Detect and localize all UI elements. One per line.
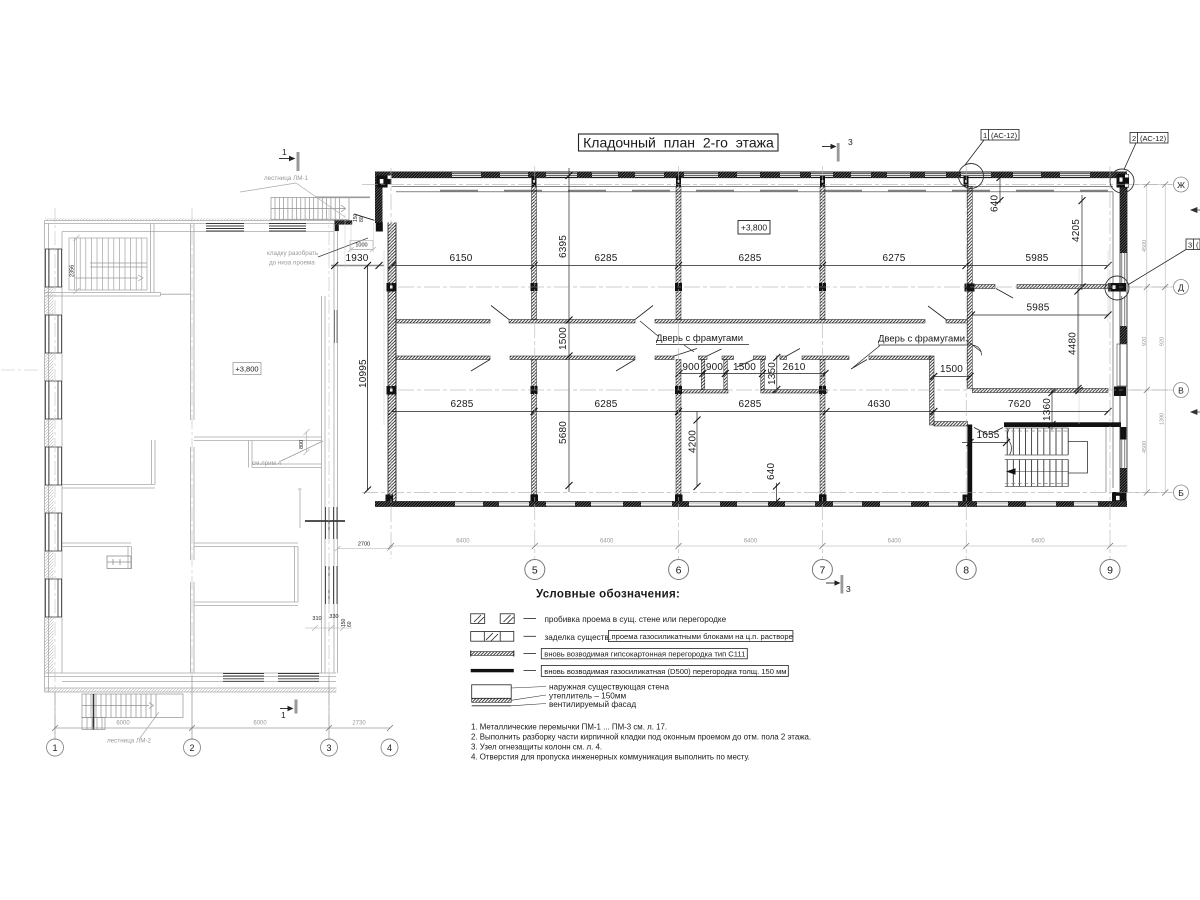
svg-text:1930: 1930 xyxy=(345,253,368,264)
svg-text:Б: Б xyxy=(1178,488,1184,498)
svg-text:1500: 1500 xyxy=(558,327,569,350)
svg-text:заделка существ.: заделка существ. xyxy=(545,633,612,642)
svg-text:3: 3 xyxy=(848,137,853,147)
svg-text:лестница ЛМ-2: лестница ЛМ-2 xyxy=(107,738,152,745)
svg-text:6000: 6000 xyxy=(253,721,267,727)
svg-text:6285: 6285 xyxy=(594,253,617,264)
svg-text:4500: 4500 xyxy=(1142,240,1148,252)
svg-text:Кладочный план 2-го этажа: Кладочный план 2-го этажа xyxy=(583,135,774,151)
svg-text:2356: 2356 xyxy=(70,265,76,277)
svg-text:1: 1 xyxy=(983,131,987,140)
svg-text:4. Отверстия для пропуска: 4. Отверстия для пропуска инженерных ком… xyxy=(471,753,750,762)
svg-text:В: В xyxy=(1178,386,1184,396)
svg-text:60: 60 xyxy=(347,621,353,627)
svg-text:4500: 4500 xyxy=(1142,441,1148,453)
svg-text:920: 920 xyxy=(1142,337,1148,346)
svg-text:1500: 1500 xyxy=(940,364,963,375)
svg-text:6275: 6275 xyxy=(882,253,905,264)
svg-text:1000: 1000 xyxy=(355,243,367,249)
svg-text:5: 5 xyxy=(532,565,538,577)
svg-text:1350: 1350 xyxy=(767,362,778,385)
svg-text:кладку разобрать: кладку разобрать xyxy=(267,249,319,257)
svg-text:лестница ЛМ-1: лестница ЛМ-1 xyxy=(264,175,309,182)
svg-text:640: 640 xyxy=(766,462,777,480)
svg-text:2: 2 xyxy=(1132,134,1136,143)
svg-text:+3,800: +3,800 xyxy=(741,223,768,233)
svg-text:5680: 5680 xyxy=(558,421,569,444)
svg-text:900: 900 xyxy=(682,362,700,373)
svg-text:330: 330 xyxy=(329,614,338,620)
svg-text:1: 1 xyxy=(282,147,287,157)
svg-text:6000: 6000 xyxy=(116,721,130,727)
svg-text:+3,800: +3,800 xyxy=(235,365,258,374)
svg-text:пробивка проема в сущ. с: пробивка проема в сущ. стене или перегор… xyxy=(545,615,727,624)
svg-text:вентилируемый фасад: вентилируемый фасад xyxy=(549,700,636,709)
svg-text:2. Выполнить разборку части: 2. Выполнить разборку части кирпичной кл… xyxy=(471,733,811,742)
svg-text:6400: 6400 xyxy=(456,539,470,545)
svg-text:6285: 6285 xyxy=(738,399,761,410)
svg-text:(АС-12): (АС-12) xyxy=(991,131,1018,140)
svg-text:6400: 6400 xyxy=(744,539,758,545)
svg-text:утеплитель – 150мм: утеплитель – 150мм xyxy=(549,691,626,700)
svg-text:6400: 6400 xyxy=(888,539,902,545)
svg-text:4200: 4200 xyxy=(688,430,699,453)
svg-text:6285: 6285 xyxy=(738,253,761,264)
svg-text:1360: 1360 xyxy=(1042,398,1053,421)
svg-text:6150: 6150 xyxy=(449,253,472,264)
svg-text:5985: 5985 xyxy=(1025,253,1048,264)
svg-text:10995: 10995 xyxy=(358,359,369,388)
svg-text:Д: Д xyxy=(1178,283,1184,293)
svg-text:1. Металлические перемычки: 1. Металлические перемычки ПМ-1 ... ПМ-3… xyxy=(471,723,667,732)
svg-text:7620: 7620 xyxy=(1008,399,1031,410)
svg-text:проема газосиликатными блоками: проема газосиликатными блоками на ц.п. р… xyxy=(612,632,793,641)
svg-text:2: 2 xyxy=(189,743,194,753)
svg-text:4630: 4630 xyxy=(867,399,890,410)
svg-text:до низа проема: до низа проема xyxy=(269,260,315,267)
svg-text:6400: 6400 xyxy=(600,539,614,545)
svg-text:Дверь с фрамугами: Дверь с фрамугами xyxy=(878,334,965,345)
svg-text:2700: 2700 xyxy=(358,542,370,548)
svg-text:800: 800 xyxy=(299,440,305,449)
svg-text:6285: 6285 xyxy=(450,399,473,410)
svg-text:8: 8 xyxy=(963,565,969,577)
svg-text:см.прим.4: см.прим.4 xyxy=(252,460,282,467)
svg-text:3: 3 xyxy=(1188,241,1192,250)
svg-text:6: 6 xyxy=(676,565,682,577)
svg-text:4480: 4480 xyxy=(1068,332,1079,355)
svg-text:640: 640 xyxy=(990,194,1001,212)
svg-text:1500: 1500 xyxy=(733,362,756,373)
svg-text:6395: 6395 xyxy=(558,235,569,258)
svg-text:вновь возводимая гипсокартонна: вновь возводимая гипсокартонная перегоро… xyxy=(544,650,745,659)
svg-text:2610: 2610 xyxy=(782,362,805,373)
svg-text:Условные обозначения:: Условные обозначения: xyxy=(536,589,680,601)
svg-text:900: 900 xyxy=(706,362,724,373)
svg-text:6400: 6400 xyxy=(1031,539,1045,545)
svg-text:920: 920 xyxy=(1160,337,1166,346)
svg-text:(АС-12): (АС-12) xyxy=(1140,134,1167,143)
svg-text:наружная существующая стена: наружная существующая стена xyxy=(549,683,669,692)
svg-text:7: 7 xyxy=(819,565,825,577)
svg-text:310: 310 xyxy=(312,616,321,622)
svg-text:Дверь с фрамугами: Дверь с фрамугами xyxy=(656,333,743,344)
svg-text:1: 1 xyxy=(281,710,286,720)
svg-text:3. Узел огнезащиты колонн: 3. Узел огнезащиты колонн см. л. 4. xyxy=(471,743,602,752)
svg-text:3: 3 xyxy=(846,584,851,594)
svg-text:1655: 1655 xyxy=(976,430,999,441)
svg-text:Ж: Ж xyxy=(1177,180,1185,190)
svg-text:4: 4 xyxy=(387,743,392,753)
svg-text:вновь возводимая газосиликатна: вновь возводимая газосиликатная (D500) п… xyxy=(544,667,786,676)
svg-text:2730: 2730 xyxy=(352,721,366,727)
svg-text:1390: 1390 xyxy=(1160,413,1166,425)
svg-text:9: 9 xyxy=(1107,565,1113,577)
svg-text:4205: 4205 xyxy=(1071,219,1082,242)
svg-text:3: 3 xyxy=(326,743,331,753)
svg-text:5985: 5985 xyxy=(1026,303,1049,314)
svg-text:1: 1 xyxy=(52,743,57,753)
svg-text:6285: 6285 xyxy=(594,399,617,410)
